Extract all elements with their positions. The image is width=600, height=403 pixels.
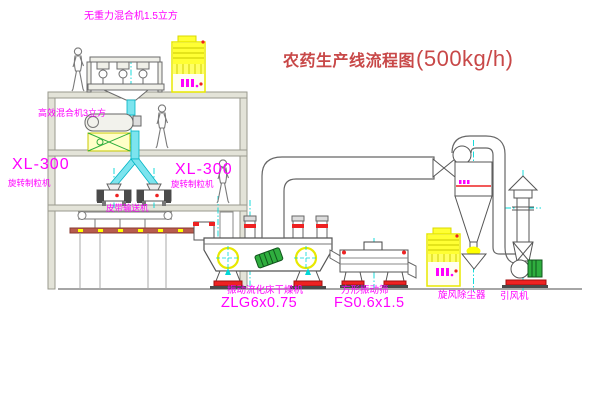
label-granulator-left-name: 旋转制粒机 xyxy=(8,179,51,188)
exhaust-stack xyxy=(509,176,537,261)
label-dryer-model: ZLG6x0.75 xyxy=(221,295,297,311)
label-granulator-left-model: XL-300 xyxy=(12,156,70,174)
cad-process-flow-screenshot: 农药生产线流程图(500kg/h) 无重力混合机1.5立方 高效混合机3立方 X… xyxy=(0,0,600,403)
vibrating-sieve xyxy=(330,242,416,288)
control-cabinet-bottom xyxy=(427,228,460,286)
title-text-capacity: (500kg/h) xyxy=(416,46,513,72)
title-text-zh: 农药生产线流程图 xyxy=(283,47,415,71)
label-high-efficiency-mixer: 高效混合机3立方 xyxy=(38,109,106,118)
label-granulator-right-model: XL-300 xyxy=(175,161,233,179)
label-sieve-model: FS0.6x1.5 xyxy=(334,295,405,311)
belt-conveyor xyxy=(70,212,202,290)
control-cabinet-top xyxy=(172,36,205,92)
exhaust-duct xyxy=(262,157,455,238)
label-top-mixer: 无重力混合机1.5立方 xyxy=(84,12,178,23)
drawing-title: 农药生产线流程图(500kg/h) xyxy=(283,46,513,72)
label-belt-conveyor: 皮带输送机 xyxy=(106,204,149,213)
label-cyclone: 旋风除尘器 xyxy=(438,291,486,301)
label-granulator-right-name: 旋转制粒机 xyxy=(171,180,214,189)
label-induced-draft-fan: 引风机 xyxy=(500,292,529,302)
induced-draft-fan xyxy=(502,260,548,288)
worker-icon xyxy=(156,105,168,148)
worker-icon xyxy=(72,48,84,91)
cyclone-text-glyphs xyxy=(459,180,470,184)
